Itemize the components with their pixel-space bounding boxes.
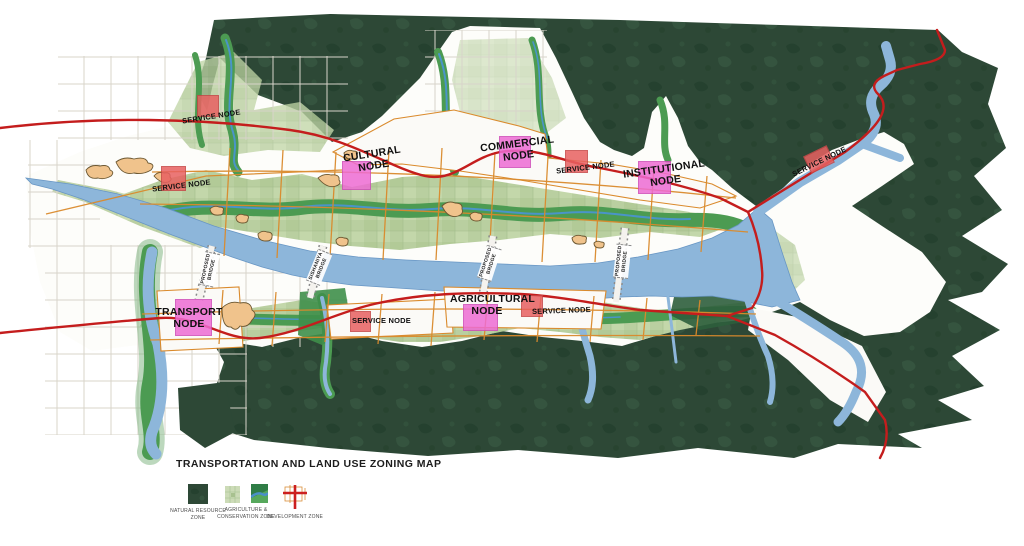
legend-item-development: DEVELOPMENT ZONE: [264, 484, 326, 521]
agriculture-swatch: [225, 486, 240, 503]
agricultural-node-label: AGRICULTURAL NODE: [450, 294, 524, 318]
zoning-map-canvas: SERVICE NODE SERVICE NODE CULTURAL NODE …: [0, 0, 1024, 546]
service-node-5-label: SERVICE NODE: [352, 317, 411, 325]
transport-node-label: TRANSPORT NODE: [150, 307, 228, 331]
legend: TRANSPORTATION AND LAND USE ZONING MAP N…: [176, 458, 606, 538]
development-zone-swatch: [282, 484, 308, 510]
forest-patch-southleft: [178, 382, 235, 448]
legend-label: DEVELOPMENT ZONE: [264, 514, 326, 521]
map-title: TRANSPORTATION AND LAND USE ZONING MAP: [176, 458, 606, 470]
natural-resource-swatch: [188, 484, 208, 504]
